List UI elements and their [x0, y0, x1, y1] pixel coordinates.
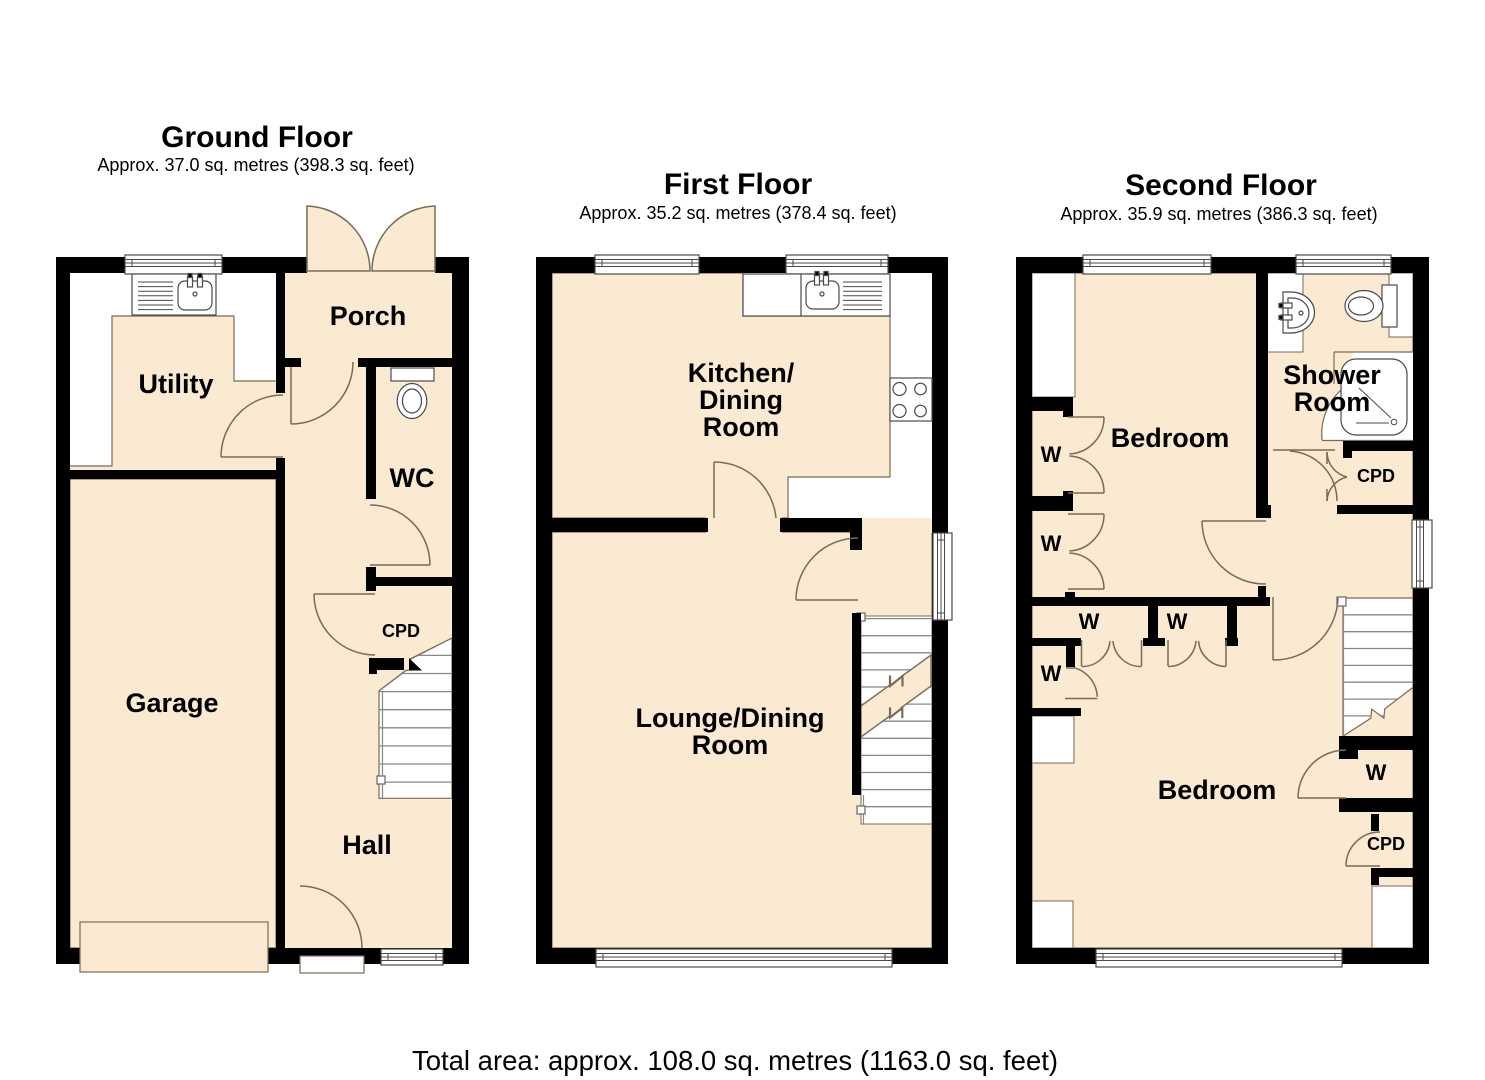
svg-text:Utility: Utility — [138, 369, 213, 399]
svg-text:Room: Room — [1294, 387, 1371, 417]
svg-text:Porch: Porch — [330, 301, 407, 331]
svg-text:W: W — [1167, 609, 1188, 634]
svg-text:Dining: Dining — [699, 385, 783, 415]
svg-text:W: W — [1079, 609, 1100, 634]
svg-text:Bedroom: Bedroom — [1111, 423, 1230, 453]
svg-text:Total area: approx. 108.0 sq.: Total area: approx. 108.0 sq. metres (11… — [412, 1045, 1058, 1076]
svg-text:W: W — [1041, 442, 1062, 467]
svg-text:Lounge/Dining: Lounge/Dining — [636, 703, 825, 733]
svg-text:Room: Room — [703, 412, 780, 442]
svg-text:Garage: Garage — [125, 688, 218, 718]
svg-text:Approx. 37.0 sq. metres (398.3: Approx. 37.0 sq. metres (398.3 sq. feet) — [97, 155, 414, 175]
svg-text:W: W — [1366, 760, 1387, 785]
svg-text:W: W — [1041, 661, 1062, 686]
svg-text:Shower: Shower — [1283, 360, 1381, 390]
svg-text:Room: Room — [692, 730, 769, 760]
svg-text:Hall: Hall — [342, 830, 392, 860]
svg-text:Ground Floor: Ground Floor — [161, 121, 353, 154]
svg-text:Second Floor: Second Floor — [1125, 169, 1317, 202]
svg-text:WC: WC — [390, 463, 435, 493]
svg-text:Approx. 35.2 sq. metres (378.4: Approx. 35.2 sq. metres (378.4 sq. feet) — [579, 203, 896, 223]
svg-text:First Floor: First Floor — [664, 168, 813, 201]
svg-text:Bedroom: Bedroom — [1158, 775, 1277, 805]
svg-text:Kitchen/: Kitchen/ — [688, 358, 795, 388]
svg-text:CPD: CPD — [1357, 466, 1395, 486]
svg-text:CPD: CPD — [382, 621, 420, 641]
svg-text:W: W — [1041, 531, 1062, 556]
svg-text:CPD: CPD — [1367, 834, 1405, 854]
svg-text:Approx. 35.9 sq. metres (386.3: Approx. 35.9 sq. metres (386.3 sq. feet) — [1060, 204, 1377, 224]
